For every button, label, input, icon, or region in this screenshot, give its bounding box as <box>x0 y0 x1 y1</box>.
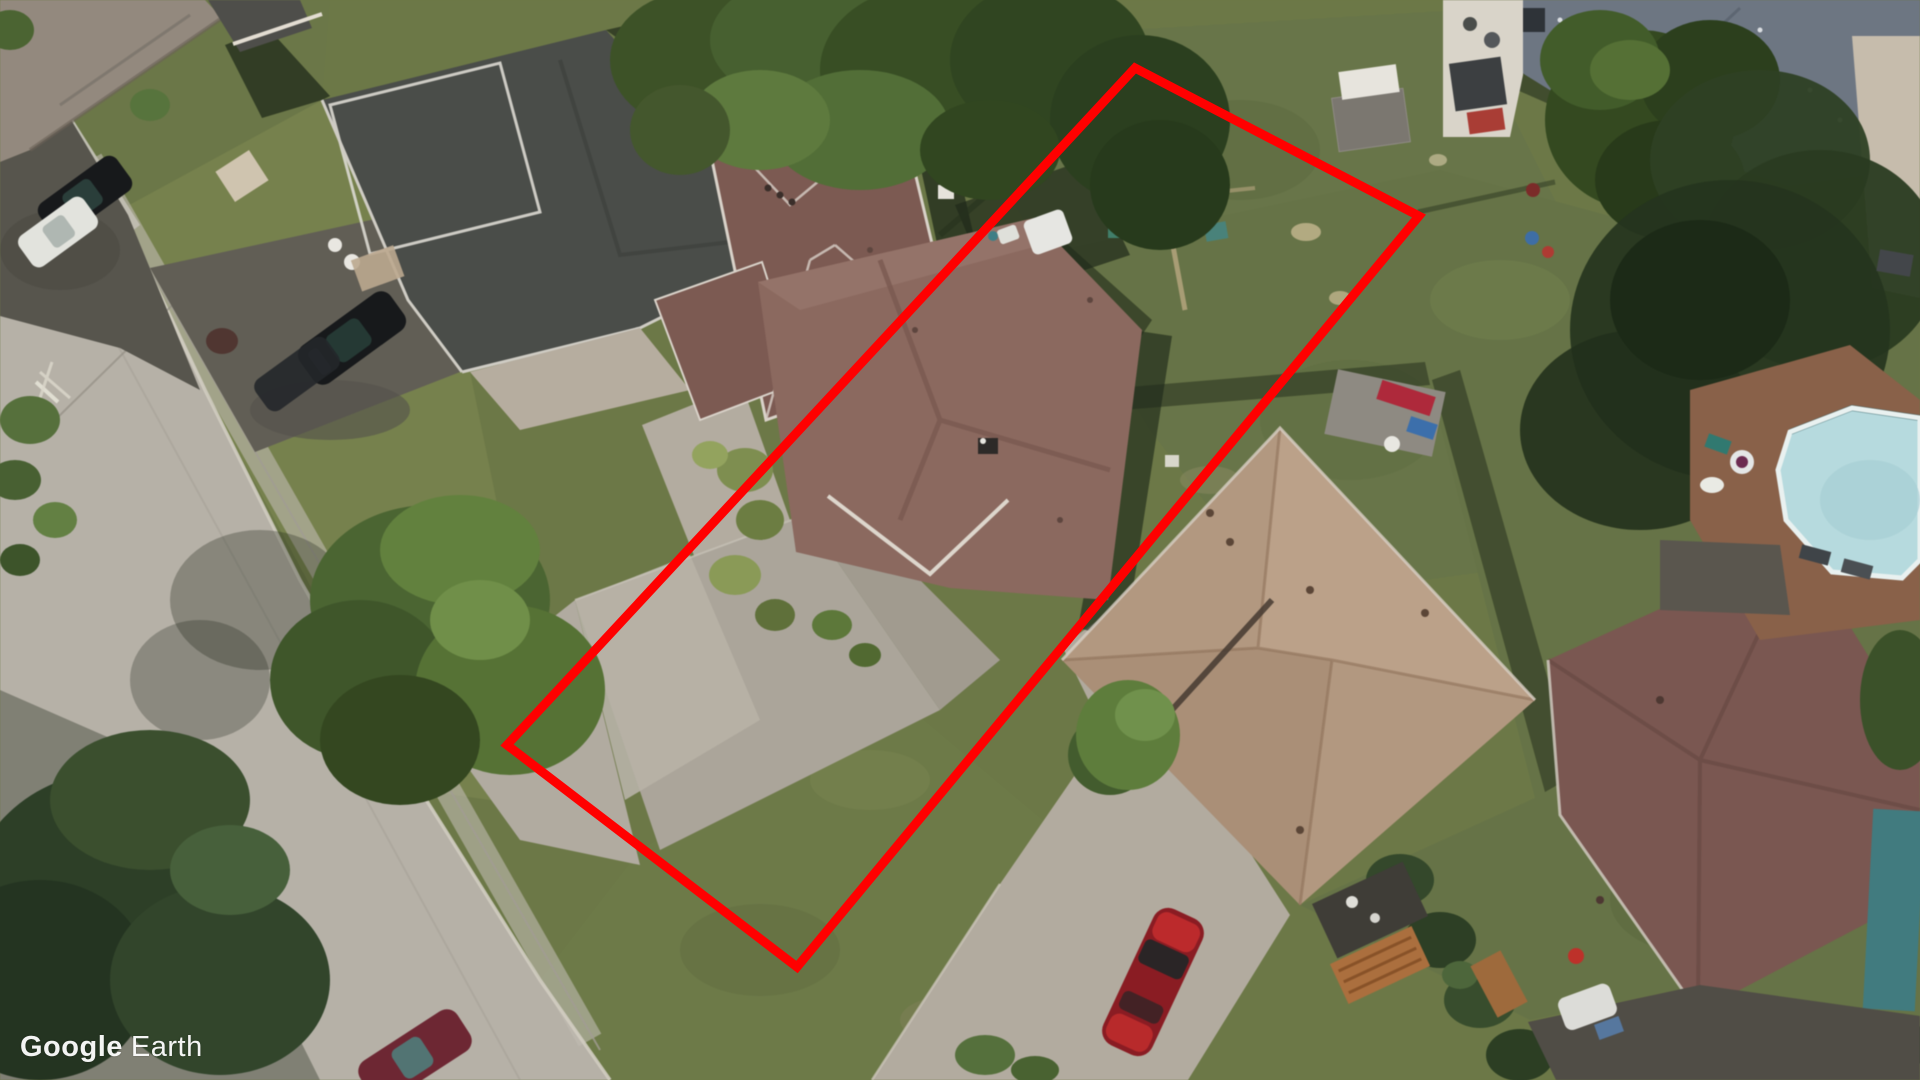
watermark-product: Earth <box>131 1031 203 1063</box>
maroon-shrub <box>206 328 238 354</box>
play-item-blue <box>1525 231 1539 245</box>
play-item-red <box>1542 246 1554 258</box>
satellite-canvas <box>0 0 1920 1080</box>
google-earth-watermark: GoogleEarth <box>20 1031 203 1064</box>
red-yard-item <box>1568 948 1584 964</box>
white-pad-building <box>1443 0 1523 137</box>
chimney <box>1523 8 1545 32</box>
watermark-brand: Google <box>20 1031 123 1063</box>
patio-furniture <box>1449 57 1507 112</box>
pool-area <box>1660 345 1920 640</box>
map-viewport[interactable]: GoogleEarth <box>0 0 1920 1080</box>
